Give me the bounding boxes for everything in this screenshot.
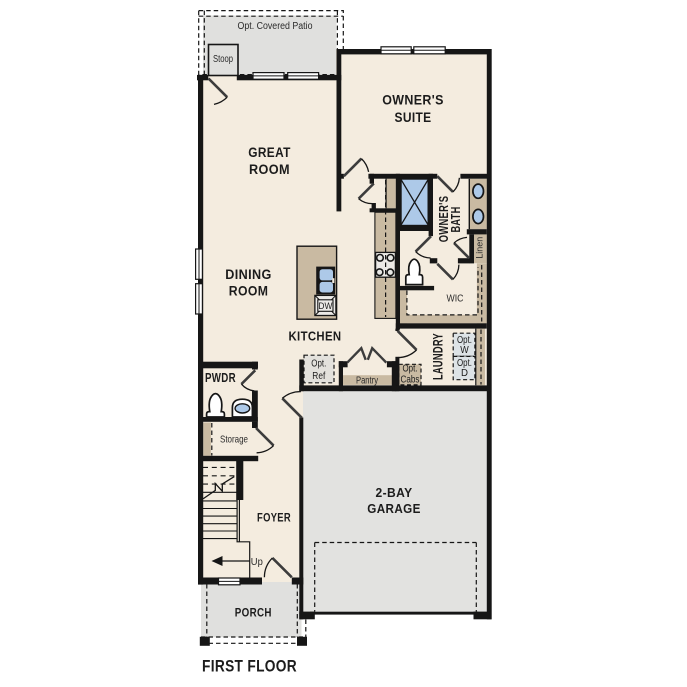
svg-text:PWDR: PWDR [205,371,236,385]
svg-text:GREAT: GREAT [248,145,291,160]
svg-text:Storage: Storage [220,433,248,445]
svg-text:Up: Up [251,556,263,568]
svg-text:ROOM: ROOM [249,162,290,177]
svg-text:Ref: Ref [312,371,325,382]
svg-text:2-BAY: 2-BAY [376,486,413,500]
svg-text:Opt. Covered Patio: Opt. Covered Patio [238,21,313,32]
svg-text:Opt.: Opt. [311,359,326,370]
svg-text:ROOM: ROOM [229,284,269,299]
svg-text:Pantry: Pantry [356,376,378,387]
svg-text:BATH: BATH [448,207,463,233]
svg-text:DINING: DINING [225,267,272,282]
svg-text:PORCH: PORCH [235,606,272,620]
svg-text:DW: DW [318,301,332,311]
svg-text:SUITE: SUITE [395,109,432,125]
svg-text:D: D [461,368,468,379]
svg-text:FIRST FLOOR: FIRST FLOOR [202,657,297,676]
svg-text:GARAGE: GARAGE [367,502,421,516]
svg-text:OWNER'S: OWNER'S [382,92,444,108]
svg-text:WIC: WIC [447,293,464,304]
svg-text:Cabs: Cabs [401,374,420,385]
svg-text:KITCHEN: KITCHEN [289,330,342,344]
svg-text:Opt.: Opt. [403,364,418,375]
svg-text:LAUNDRY: LAUNDRY [431,333,446,380]
svg-text:FOYER: FOYER [257,511,291,525]
svg-text:Linen: Linen [475,237,486,259]
svg-text:W: W [460,345,469,356]
svg-text:Stoop: Stoop [213,54,233,65]
